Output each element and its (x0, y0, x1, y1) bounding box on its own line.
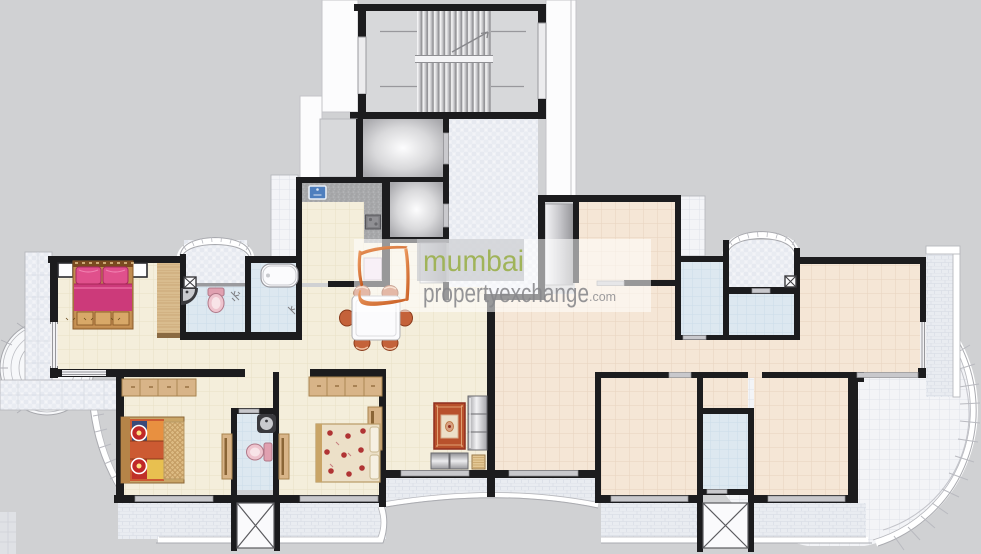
svg-text:propertyexchange: propertyexchange (423, 280, 589, 308)
svg-text:.com: .com (589, 290, 616, 304)
svg-text:mumbai: mumbai (423, 245, 524, 278)
